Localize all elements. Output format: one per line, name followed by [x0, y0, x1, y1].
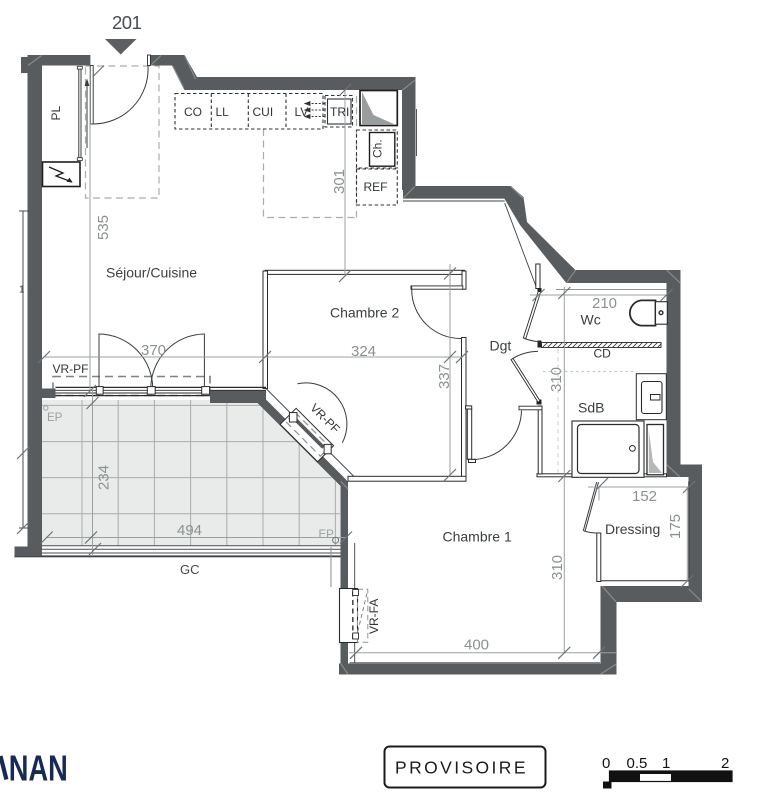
- svg-text:0: 0: [602, 755, 610, 772]
- svg-text:Ch.: Ch.: [371, 139, 385, 158]
- svg-text:1: 1: [19, 285, 25, 296]
- svg-text:TRI: TRI: [330, 105, 349, 119]
- svg-text:REF: REF: [364, 180, 388, 194]
- svg-text:Wc: Wc: [581, 312, 601, 328]
- svg-text:494: 494: [177, 522, 202, 539]
- svg-text:Dressing: Dressing: [605, 521, 660, 537]
- svg-text:NAN: NAN: [9, 748, 68, 789]
- svg-text:CD: CD: [594, 347, 612, 361]
- svg-text:EP: EP: [47, 412, 63, 424]
- svg-text:175: 175: [667, 514, 684, 539]
- svg-text:370: 370: [141, 342, 166, 359]
- svg-text:210: 210: [592, 295, 617, 312]
- svg-text:EP: EP: [319, 529, 335, 541]
- svg-text:Dgt: Dgt: [490, 338, 512, 354]
- svg-text:Chambre 1: Chambre 1: [443, 529, 512, 545]
- svg-text:CUI: CUI: [253, 105, 274, 119]
- svg-text:400: 400: [464, 637, 489, 654]
- svg-text:PL: PL: [49, 105, 63, 120]
- svg-text:0.5: 0.5: [627, 755, 648, 772]
- svg-text:CO: CO: [184, 105, 202, 119]
- svg-text:1: 1: [662, 755, 670, 772]
- svg-text:SdB: SdB: [578, 400, 604, 416]
- svg-text:Séjour/Cuisine: Séjour/Cuisine: [106, 265, 197, 281]
- svg-text:310: 310: [549, 555, 566, 580]
- svg-text:152: 152: [632, 488, 657, 505]
- svg-text:324: 324: [351, 343, 376, 360]
- svg-text:2: 2: [721, 755, 729, 772]
- svg-text:201: 201: [112, 12, 142, 33]
- svg-text:LL: LL: [216, 105, 230, 119]
- svg-text:234: 234: [96, 465, 113, 490]
- svg-text:Chambre 2: Chambre 2: [330, 305, 399, 321]
- svg-text:LV: LV: [295, 105, 309, 119]
- svg-text:PROVISOIRE: PROVISOIRE: [395, 758, 528, 778]
- svg-text:VR-FA: VR-FA: [367, 599, 381, 634]
- svg-text:301: 301: [331, 169, 348, 194]
- svg-text:VR-PF: VR-PF: [53, 362, 89, 376]
- svg-text:337: 337: [436, 364, 453, 389]
- svg-text:GC: GC: [180, 562, 200, 577]
- svg-text:535: 535: [95, 215, 112, 240]
- svg-text:310: 310: [548, 367, 565, 392]
